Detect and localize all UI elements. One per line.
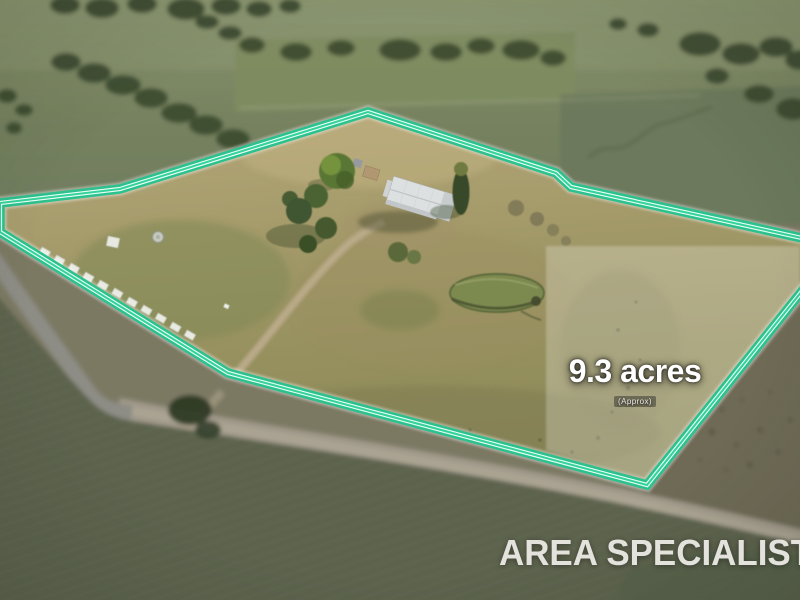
photo-scene bbox=[0, 0, 800, 600]
area-qualifier: (Approx) bbox=[614, 396, 656, 407]
area-label: 9.3 acres bbox=[560, 355, 710, 389]
area-qualifier-wrap: (Approx) bbox=[560, 391, 710, 409]
watermark-logo: AREA SPECIALIST bbox=[499, 532, 800, 574]
aerial-photo: 9.3 acres (Approx) AREA SPECIALIST bbox=[0, 0, 800, 600]
vignette bbox=[0, 0, 800, 600]
